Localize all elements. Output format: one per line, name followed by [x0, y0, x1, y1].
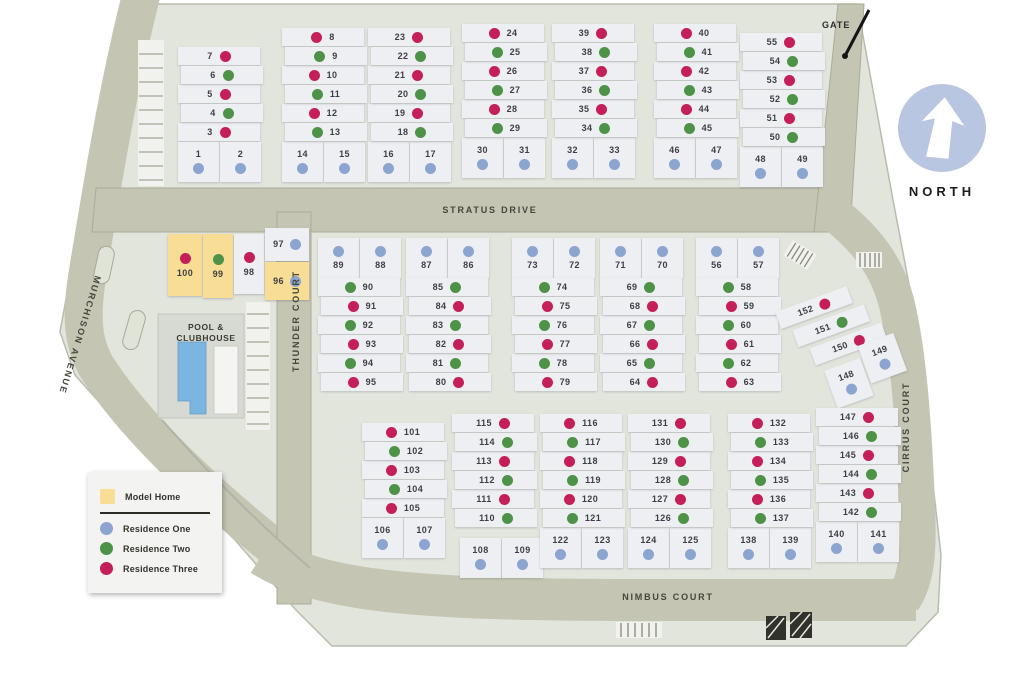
- residence-three-dot: [386, 427, 397, 438]
- lot-133[interactable]: 133: [731, 433, 813, 451]
- lot-19[interactable]: 19: [368, 104, 450, 122]
- lot-34[interactable]: 34: [555, 119, 637, 137]
- lot-23[interactable]: 23: [368, 28, 450, 46]
- lot-number: 108: [472, 546, 488, 555]
- lot-140[interactable]: 140: [816, 522, 857, 562]
- lot-number: 26: [507, 67, 518, 76]
- residence-one-dot: [743, 549, 754, 560]
- lot-143[interactable]: 143: [816, 484, 898, 502]
- lot-108[interactable]: 108: [460, 538, 501, 578]
- lot-number: 97: [273, 240, 284, 249]
- lot-number: 146: [843, 432, 859, 441]
- lot-number: 61: [744, 340, 755, 349]
- lot-number: 113: [476, 457, 492, 466]
- lot-65[interactable]: 65: [600, 354, 682, 372]
- lot-74[interactable]: 74: [512, 278, 594, 296]
- lot-1[interactable]: 1: [178, 142, 219, 182]
- lot-110[interactable]: 110: [455, 509, 537, 527]
- lot-25[interactable]: 25: [465, 43, 547, 61]
- lot-number: 59: [744, 302, 755, 311]
- residence-three-dot: [564, 418, 575, 429]
- residence-three-dot: [564, 456, 575, 467]
- lot-36[interactable]: 36: [555, 81, 637, 99]
- lot-43[interactable]: 43: [657, 81, 739, 99]
- lot-number: 130: [655, 438, 671, 447]
- lot-number: 109: [514, 546, 530, 555]
- lot-97[interactable]: 97: [265, 228, 309, 261]
- residence-three-dot: [386, 503, 397, 514]
- residence-three-dot: [784, 37, 795, 48]
- street-label-thunder-court: THUNDER COURT: [291, 261, 301, 381]
- lot-78[interactable]: 78: [512, 354, 594, 372]
- legend-item-model-home: Model Home: [100, 489, 210, 504]
- lot-57[interactable]: 57: [738, 238, 779, 278]
- lot-91[interactable]: 91: [321, 297, 403, 315]
- residence-one-dot: [873, 543, 884, 554]
- lot-number: 82: [436, 340, 447, 349]
- residence-two-dot: [567, 475, 578, 486]
- lot-number: 104: [407, 485, 423, 494]
- street-label-cirrus-court: CIRRUS COURT: [901, 372, 911, 482]
- residence-three-dot: [309, 108, 320, 119]
- lot-number: 115: [476, 419, 492, 428]
- lot-number: 136: [770, 495, 786, 504]
- lot-number: 44: [699, 105, 710, 114]
- lot-number: 6: [210, 71, 215, 80]
- lot-105[interactable]: 105: [362, 499, 444, 517]
- residence-two-dot: [684, 123, 695, 134]
- lot-47[interactable]: 47: [696, 138, 737, 178]
- lot-number: 100: [177, 269, 193, 278]
- lot-number: 76: [557, 321, 568, 330]
- lot-9[interactable]: 9: [285, 47, 367, 65]
- lot-88[interactable]: 88: [360, 238, 401, 278]
- lot-number: 34: [582, 124, 593, 133]
- residence-three-dot: [752, 456, 763, 467]
- lot-number: 118: [582, 457, 598, 466]
- lot-141[interactable]: 141: [858, 522, 899, 562]
- lot-3[interactable]: 3: [178, 123, 260, 141]
- lot-33[interactable]: 33: [594, 138, 635, 178]
- residence-one-dot: [375, 246, 386, 257]
- lot-number: 54: [770, 57, 781, 66]
- lot-85[interactable]: 85: [406, 278, 488, 296]
- lot-15[interactable]: 15: [324, 142, 365, 182]
- lot-86[interactable]: 86: [448, 238, 489, 278]
- residence-one-dot: [339, 163, 350, 174]
- lot-120[interactable]: 120: [540, 490, 622, 508]
- lot-32[interactable]: 32: [552, 138, 593, 178]
- lot-73[interactable]: 73: [512, 238, 553, 278]
- residence-three-dot: [863, 488, 874, 499]
- lot-59[interactable]: 59: [699, 297, 781, 315]
- lot-number: 124: [640, 536, 656, 545]
- lot-2[interactable]: 2: [220, 142, 261, 182]
- residence-two-dot: [644, 320, 655, 331]
- lot-41[interactable]: 41: [657, 43, 739, 61]
- lot-98[interactable]: 98: [234, 234, 264, 294]
- lot-50[interactable]: 50: [743, 128, 825, 146]
- lot-89[interactable]: 89: [318, 238, 359, 278]
- building-cluster: 115114113112111110108109: [452, 414, 535, 568]
- lot-number: 96: [273, 277, 284, 286]
- legend-label: Residence Two: [123, 544, 190, 554]
- residence-one-dot: [657, 246, 668, 257]
- residence-two-dot: [599, 85, 610, 96]
- residence-three-dot: [489, 28, 500, 39]
- lot-28[interactable]: 28: [462, 100, 544, 118]
- lot-93[interactable]: 93: [321, 335, 403, 353]
- lot-82[interactable]: 82: [409, 335, 491, 353]
- lot-121[interactable]: 121: [543, 509, 625, 527]
- lot-35[interactable]: 35: [552, 100, 634, 118]
- lot-number: 18: [398, 128, 409, 137]
- residence-three-dot: [596, 28, 607, 39]
- lot-106[interactable]: 106: [362, 518, 403, 558]
- residence-one-dot: [425, 163, 436, 174]
- lot-103[interactable]: 103: [362, 461, 444, 479]
- residence-two-dot: [539, 282, 550, 293]
- lot-number: 107: [416, 526, 432, 535]
- lot-114[interactable]: 114: [455, 433, 537, 451]
- lot-20[interactable]: 20: [371, 85, 453, 103]
- residence-two-dot: [644, 282, 655, 293]
- residence-two-dot: [835, 315, 849, 329]
- lot-54[interactable]: 54: [743, 52, 825, 70]
- lot-number: 105: [404, 504, 420, 513]
- building-cluster: 7170696867666564: [600, 238, 683, 392]
- residence-two-dot: [567, 513, 578, 524]
- residence-two-dot: [599, 47, 610, 58]
- lot-4[interactable]: 4: [181, 104, 263, 122]
- lot-number: 66: [630, 340, 641, 349]
- lot-132[interactable]: 132: [728, 414, 810, 432]
- lot-17[interactable]: 17: [410, 142, 451, 182]
- lot-6[interactable]: 6: [181, 66, 263, 84]
- lot-number: 132: [770, 419, 786, 428]
- lot-95[interactable]: 95: [321, 373, 403, 391]
- lot-number: 15: [339, 150, 350, 159]
- residence-two-dot: [389, 484, 400, 495]
- lot-number: 114: [479, 438, 495, 447]
- lot-68[interactable]: 68: [603, 297, 685, 315]
- lot-63[interactable]: 63: [699, 373, 781, 391]
- lot-116[interactable]: 116: [540, 414, 622, 432]
- residence-two-dot: [312, 127, 323, 138]
- lot-number: 3: [207, 128, 212, 137]
- lot-number: 142: [843, 508, 859, 517]
- residence-three-dot: [596, 66, 607, 77]
- lot-12[interactable]: 12: [282, 104, 364, 122]
- lot-131[interactable]: 131: [628, 414, 710, 432]
- residence-one-dot: [711, 159, 722, 170]
- lot-51[interactable]: 51: [740, 109, 822, 127]
- lot-8[interactable]: 8: [282, 28, 364, 46]
- lot-number: 116: [582, 419, 598, 428]
- lot-29[interactable]: 29: [465, 119, 547, 137]
- lot-119[interactable]: 119: [543, 471, 625, 489]
- lot-number: 21: [395, 71, 406, 80]
- lot-number: 28: [507, 105, 518, 114]
- legend-divider: [100, 512, 210, 514]
- lot-number: 147: [840, 413, 856, 422]
- lot-21[interactable]: 21: [368, 66, 450, 84]
- lot-number: 141: [870, 530, 886, 539]
- pool-clubhouse-label: POOL & CLUBHOUSE: [166, 322, 246, 345]
- lot-number: 117: [585, 438, 601, 447]
- lot-27[interactable]: 27: [465, 81, 547, 99]
- lot-13[interactable]: 13: [285, 123, 367, 141]
- lot-61[interactable]: 61: [699, 335, 781, 353]
- legend-item-residence-one: Residence One: [100, 522, 210, 535]
- lot-number: 94: [363, 359, 374, 368]
- residence-two-dot: [100, 542, 113, 555]
- lot-79[interactable]: 79: [515, 373, 597, 391]
- lot-number: 91: [366, 302, 377, 311]
- lot-number: 56: [711, 261, 722, 270]
- residence-one-dot: [785, 549, 796, 560]
- residence-one-dot: [477, 159, 488, 170]
- lot-24[interactable]: 24: [462, 24, 544, 42]
- residence-two-dot: [415, 51, 426, 62]
- lot-145[interactable]: 145: [816, 446, 898, 464]
- residence-two-dot: [539, 358, 550, 369]
- lot-39[interactable]: 39: [552, 24, 634, 42]
- lot-number: 119: [585, 476, 601, 485]
- lot-number: 46: [669, 146, 680, 155]
- lot-115[interactable]: 115: [452, 414, 534, 432]
- residence-three-dot: [348, 377, 359, 388]
- lot-55[interactable]: 55: [740, 33, 822, 51]
- lot-136[interactable]: 136: [728, 490, 810, 508]
- lot-number: 24: [507, 29, 518, 38]
- lot-142[interactable]: 142: [819, 503, 901, 521]
- lot-67[interactable]: 67: [600, 316, 682, 334]
- lot-number: 27: [510, 86, 521, 95]
- lot-87[interactable]: 87: [406, 238, 447, 278]
- lot-52[interactable]: 52: [743, 90, 825, 108]
- lot-66[interactable]: 66: [603, 335, 685, 353]
- lot-62[interactable]: 62: [696, 354, 778, 372]
- lot-77[interactable]: 77: [515, 335, 597, 353]
- lot-58[interactable]: 58: [696, 278, 778, 296]
- residence-one-dot: [615, 246, 626, 257]
- lot-30[interactable]: 30: [462, 138, 503, 178]
- lot-101[interactable]: 101: [362, 423, 444, 441]
- lot-139[interactable]: 139: [770, 528, 811, 568]
- lot-53[interactable]: 53: [740, 71, 822, 89]
- lot-75[interactable]: 75: [515, 297, 597, 315]
- lot-138[interactable]: 138: [728, 528, 769, 568]
- lot-number: 84: [436, 302, 447, 311]
- residence-three-dot: [348, 339, 359, 350]
- lot-number: 64: [630, 378, 641, 387]
- lot-number: 144: [843, 470, 859, 479]
- lot-100-model-home[interactable]: 100: [168, 234, 202, 296]
- lot-number: 87: [421, 261, 432, 270]
- lot-number: 126: [655, 514, 671, 523]
- residence-three-dot: [863, 450, 874, 461]
- lot-number: 37: [579, 67, 590, 76]
- lot-118[interactable]: 118: [540, 452, 622, 470]
- lot-number: 49: [797, 155, 808, 164]
- lot-147[interactable]: 147: [816, 408, 898, 426]
- lot-number: 149: [871, 344, 889, 358]
- lot-76[interactable]: 76: [512, 316, 594, 334]
- lot-71[interactable]: 71: [600, 238, 641, 278]
- lot-22[interactable]: 22: [371, 47, 453, 65]
- lot-60[interactable]: 60: [696, 316, 778, 334]
- lot-94[interactable]: 94: [318, 354, 400, 372]
- lot-number: 148: [837, 369, 855, 383]
- building-cluster: 101102103104105106107: [362, 423, 445, 558]
- lot-number: 68: [630, 302, 641, 311]
- lot-56[interactable]: 56: [696, 238, 737, 278]
- lot-128[interactable]: 128: [631, 471, 713, 489]
- residence-one-dot: [193, 163, 204, 174]
- lot-number: 133: [773, 438, 789, 447]
- lot-number: 90: [363, 283, 374, 292]
- lot-144[interactable]: 144: [819, 465, 901, 483]
- residence-one-dot: [421, 246, 432, 257]
- lot-99-model-home[interactable]: 99: [203, 234, 233, 298]
- lot-64[interactable]: 64: [603, 373, 685, 391]
- lot-11[interactable]: 11: [285, 85, 367, 103]
- lot-104[interactable]: 104: [365, 480, 447, 498]
- lot-123[interactable]: 123: [582, 528, 623, 568]
- lot-134[interactable]: 134: [728, 452, 810, 470]
- building-cluster: 5657585960616263: [696, 238, 779, 392]
- lot-70[interactable]: 70: [642, 238, 683, 278]
- lot-122[interactable]: 122: [540, 528, 581, 568]
- residence-one-dot: [100, 522, 113, 535]
- lot-number: 38: [582, 48, 593, 57]
- building-cluster: 116117118119120121122123: [540, 414, 623, 568]
- lot-113[interactable]: 113: [452, 452, 534, 470]
- lot-number: 63: [744, 378, 755, 387]
- north-indicator: NORTH: [897, 84, 987, 199]
- lot-42[interactable]: 42: [654, 62, 736, 80]
- residence-three-dot: [564, 494, 575, 505]
- lot-5[interactable]: 5: [178, 85, 260, 103]
- lot-number: 42: [699, 67, 710, 76]
- lot-81[interactable]: 81: [406, 354, 488, 372]
- lot-49[interactable]: 49: [782, 147, 823, 187]
- lot-31[interactable]: 31: [504, 138, 545, 178]
- residence-three-dot: [752, 418, 763, 429]
- lot-number: 4: [210, 109, 215, 118]
- building-cluster: 2322212019181617: [368, 28, 451, 182]
- building-cluster: 4041424344454647: [654, 24, 737, 178]
- lot-number: 1: [196, 150, 201, 159]
- lot-90[interactable]: 90: [318, 278, 400, 296]
- lot-40[interactable]: 40: [654, 24, 736, 42]
- lot-7[interactable]: 7: [178, 47, 260, 65]
- lot-83[interactable]: 83: [406, 316, 488, 334]
- residence-three-dot: [412, 70, 423, 81]
- residence-two-dot: [599, 123, 610, 134]
- residence-three-dot: [542, 339, 553, 350]
- lot-137[interactable]: 137: [731, 509, 813, 527]
- lot-38[interactable]: 38: [555, 43, 637, 61]
- lot-number: 11: [330, 90, 340, 99]
- lot-117[interactable]: 117: [543, 433, 625, 451]
- lot-number: 12: [327, 109, 338, 118]
- lot-125[interactable]: 125: [670, 528, 711, 568]
- lot-126[interactable]: 126: [631, 509, 713, 527]
- lot-96-model-home[interactable]: 96: [265, 262, 309, 300]
- lot-18[interactable]: 18: [371, 123, 453, 141]
- lot-number: 125: [682, 536, 698, 545]
- lot-80[interactable]: 80: [409, 373, 491, 391]
- lot-14[interactable]: 14: [282, 142, 323, 182]
- lot-84[interactable]: 84: [409, 297, 491, 315]
- residence-two-dot: [345, 358, 356, 369]
- lot-102[interactable]: 102: [365, 442, 447, 460]
- lot-number: 39: [579, 29, 590, 38]
- lot-16[interactable]: 16: [368, 142, 409, 182]
- lot-107[interactable]: 107: [404, 518, 445, 558]
- lot-130[interactable]: 130: [631, 433, 713, 451]
- lot-number: 2: [238, 150, 243, 159]
- residence-two-dot: [787, 94, 798, 105]
- residence-two-dot: [415, 89, 426, 100]
- residence-three-dot: [412, 108, 423, 119]
- lot-number: 7: [207, 52, 212, 61]
- lot-10[interactable]: 10: [282, 66, 364, 84]
- lot-124[interactable]: 124: [628, 528, 669, 568]
- lot-number: 101: [404, 428, 420, 437]
- lot-number: 35: [579, 105, 590, 114]
- lot-number: 31: [519, 146, 530, 155]
- lot-number: 23: [395, 33, 406, 42]
- residence-two-dot: [787, 56, 798, 67]
- lot-number: 79: [560, 378, 571, 387]
- lot-146[interactable]: 146: [819, 427, 901, 445]
- residence-one-dot: [831, 543, 842, 554]
- lot-112[interactable]: 112: [455, 471, 537, 489]
- lot-127[interactable]: 127: [628, 490, 710, 508]
- lot-26[interactable]: 26: [462, 62, 544, 80]
- building-cluster: 147146145144143142140141: [816, 408, 899, 562]
- lot-92[interactable]: 92: [318, 316, 400, 334]
- street-label-nimbus-court: NIMBUS COURT: [608, 592, 728, 602]
- residence-two-dot: [345, 282, 356, 293]
- lot-111[interactable]: 111: [452, 490, 534, 508]
- lot-46[interactable]: 46: [654, 138, 695, 178]
- lot-72[interactable]: 72: [554, 238, 595, 278]
- residence-three-dot: [675, 494, 686, 505]
- lot-44[interactable]: 44: [654, 100, 736, 118]
- lot-69[interactable]: 69: [600, 278, 682, 296]
- building-cluster: 131130129128127126124125: [628, 414, 711, 568]
- lot-number: 17: [425, 150, 436, 159]
- lot-48[interactable]: 48: [740, 147, 781, 187]
- street-label-stratus-drive: STRATUS DRIVE: [415, 205, 565, 215]
- residence-one-dot: [555, 549, 566, 560]
- lot-number: 50: [770, 133, 781, 142]
- lot-135[interactable]: 135: [731, 471, 813, 489]
- lot-number: 129: [652, 457, 668, 466]
- lot-number: 93: [366, 340, 377, 349]
- lot-45[interactable]: 45: [657, 119, 739, 137]
- residence-one-dot: [527, 246, 538, 257]
- lot-37[interactable]: 37: [552, 62, 634, 80]
- lot-109[interactable]: 109: [502, 538, 543, 578]
- pool-label-line2: CLUBHOUSE: [176, 333, 235, 343]
- lot-129[interactable]: 129: [628, 452, 710, 470]
- legend-label: Residence One: [123, 524, 191, 534]
